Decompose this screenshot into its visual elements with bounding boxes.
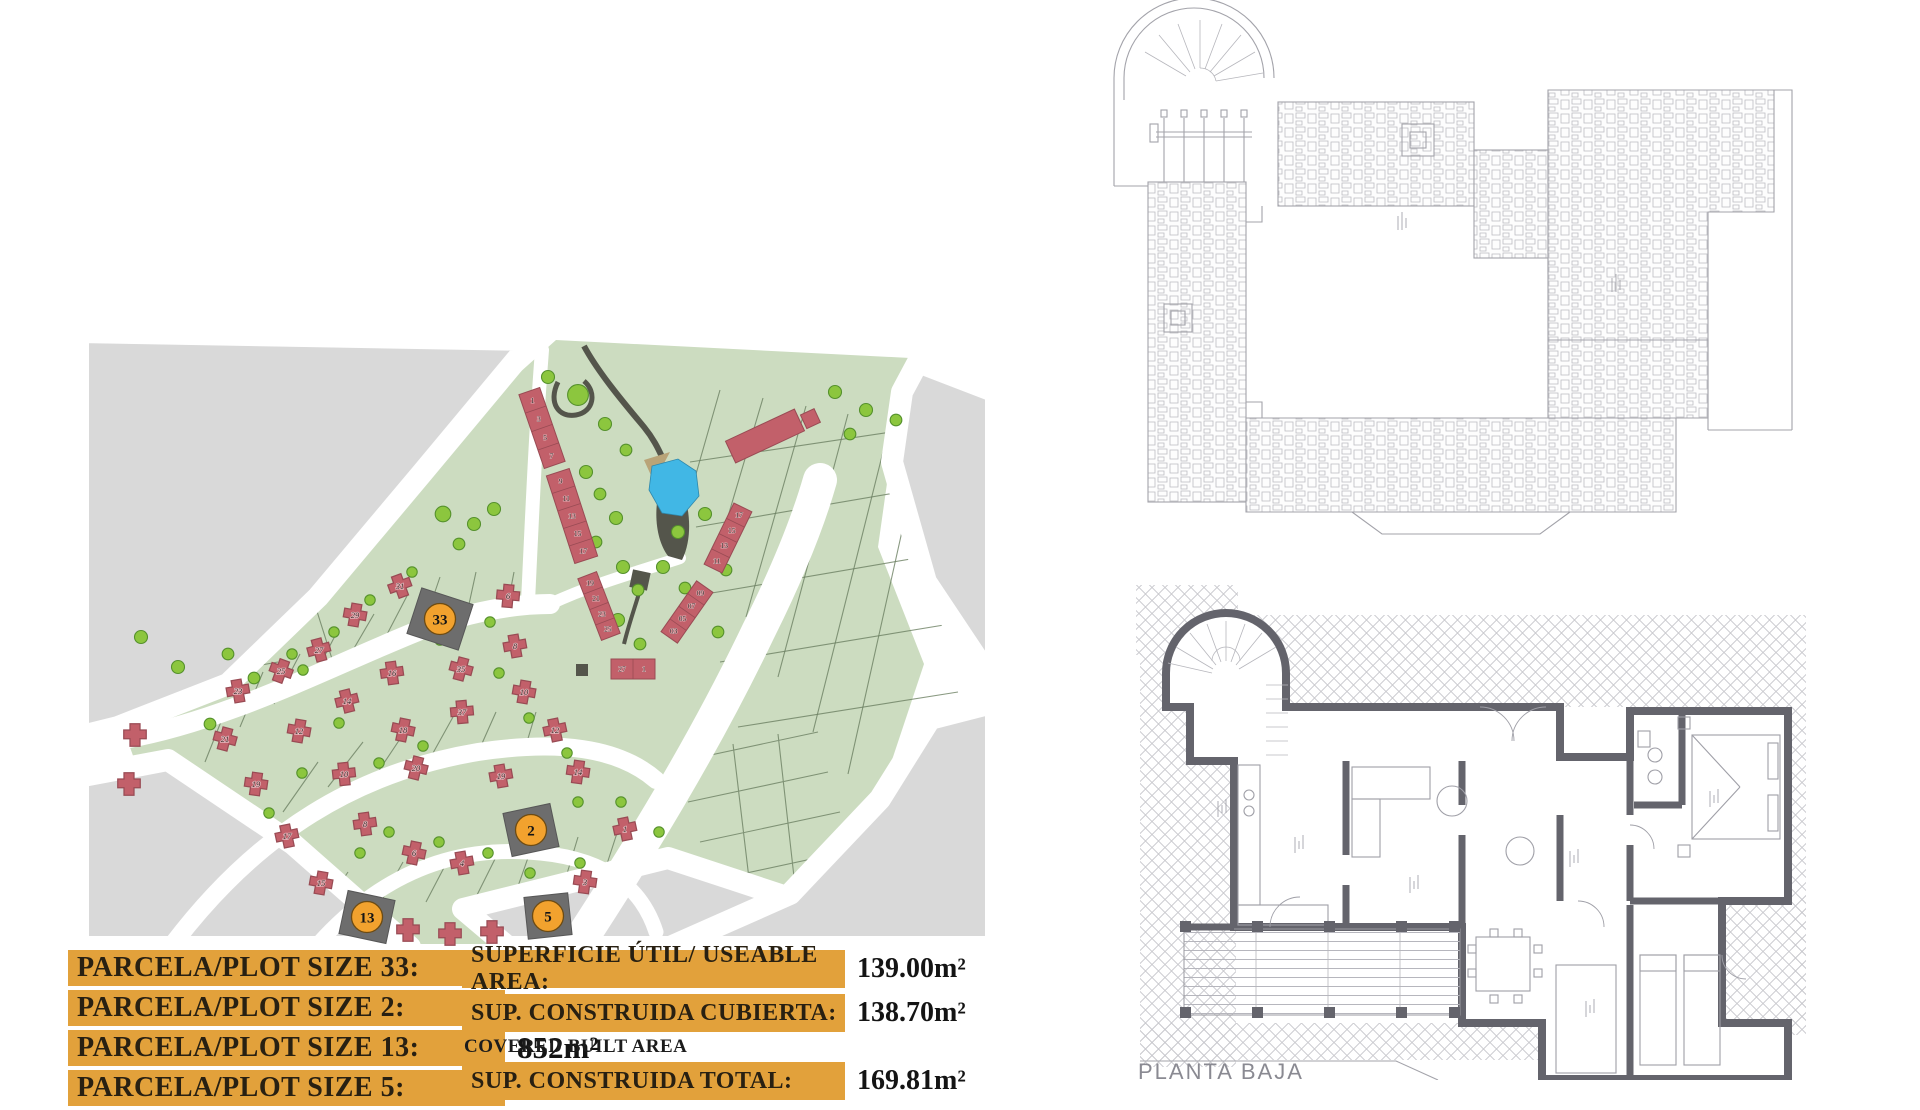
townhouse-unit-number: 19 [586,578,594,587]
area-value: 169.81m² [857,1065,966,1097]
plot-number: 37 [457,707,467,717]
townhouse-unit-number: 13 [721,541,729,550]
tree-icon [172,661,185,674]
tree-icon [616,797,626,807]
table-row: SUP. CONSTRUIDA CUBIERTA: 138.70m² [462,994,966,1032]
plot-number: 21 [221,734,230,744]
tree-icon [632,584,644,596]
floor-plan-title: PLANTA BAJA [1138,1059,1304,1080]
built-area-table: SUPERFICIE ÚTIL/ USEABLE AREA: 139.00m² … [462,950,966,1106]
townhouse-unit-number: 1 [642,665,646,674]
townhouse-unit-number: 13 [568,512,576,521]
plot-number: 15 [317,878,326,888]
roof-tiled-areas [1148,90,1774,512]
tree-icon [672,526,685,539]
townhouse-unit-number: 23 [598,609,606,618]
plot-size-label: PARCELA/PLOT SIZE 33: [68,950,505,986]
brochure-page: { "tables": { "plot_sizes": [ {"label": … [0,0,1920,1080]
plot-number: 31 [395,581,405,591]
area-value: 138.70m² [857,997,966,1029]
tree-icon [355,848,365,858]
plot-number: 23 [234,686,243,696]
roof-spiral-stair [1145,20,1263,81]
tree-icon [573,797,583,807]
townhouse-unit-number: 7 [550,451,554,460]
tree-icon [435,506,451,522]
townhouse-unit-number: 03 [670,627,678,636]
tree-icon [468,518,481,531]
ground-floor-plan: PLANTA BAJA [1100,555,1810,1080]
tree-icon [575,858,585,868]
tree-icon [407,567,417,577]
tree-icon [634,638,646,650]
area-label: SUP. CONSTRUIDA TOTAL: [462,1062,845,1100]
tree-icon [594,488,606,500]
townhouse-unit-number: 21 [592,594,600,603]
townhouse-unit-number: 09 [697,589,705,598]
tree-icon [222,648,234,660]
tree-icon [525,868,535,878]
townhouse-unit-number: 3 [537,414,541,423]
tree-icon [657,561,670,574]
tree-icon [453,538,465,550]
highlighted-plot-number: 33 [433,612,448,628]
plot-number: 14 [574,767,583,777]
tree-icon [264,808,274,818]
townhouse-unit-number: 07 [688,601,696,610]
townhouse-unit-number: 11 [563,494,570,503]
townhouse-unit-number: 5 [543,433,547,442]
townhouse-unit-number: 11 [713,557,720,566]
tree-icon [494,668,504,678]
townhouse-unit-number: 9 [559,477,563,486]
site-plan-map: 332135 212325272931683537101214161814121… [78,332,998,947]
tree-icon [699,508,712,521]
tree-icon [135,631,148,644]
townhouse-unit-number: 27 [618,665,626,674]
plot-number: 20 [412,763,421,773]
tree-icon [298,665,308,675]
roof-entry-tower [1114,0,1274,186]
townhouse-unit-number: 1 [531,396,535,405]
tree-icon [890,414,902,426]
plot-number: 12 [295,726,304,736]
tree-icon [620,444,632,456]
area-label: SUPERFICIE ÚTIL/ USEABLE AREA: [462,950,845,988]
tree-icon [860,404,873,417]
tree-icon [844,428,856,440]
plot-number: 10 [340,769,349,779]
tree-icon [434,837,444,847]
plot-number: 18 [399,725,408,735]
tree-icon [374,758,384,768]
plot-number: 3 [582,877,587,887]
tree-icon [334,718,344,728]
plot-size-label: PARCELA/PLOT SIZE 13: [68,1030,505,1066]
roof-pergola [1150,110,1252,182]
plot-number: 29 [351,610,360,620]
townhouse-unit-number: 17 [735,511,743,520]
highlighted-plot-number: 13 [360,910,375,926]
plot-size-label: PARCELA/PLOT SIZE 5: [68,1070,505,1106]
tree-icon [365,595,375,605]
plot-number: 12 [551,725,560,735]
tree-icon [829,386,842,399]
tree-icon [568,385,589,406]
tree-icon [599,418,612,431]
tree-icon [524,713,534,723]
highlighted-plot-number: 5 [544,909,552,925]
townhouse-unit-number: 05 [679,614,687,623]
plot-number: 16 [388,668,397,678]
tree-icon [418,741,428,751]
tree-icon [384,827,394,837]
tree-icon [580,466,593,479]
table-row: SUPERFICIE ÚTIL/ USEABLE AREA: 139.00m² [462,950,966,988]
townhouse-unit-number: 15 [574,529,582,538]
tree-icon [610,512,623,525]
townhouse-unit-number: 17 [580,547,588,556]
highlighted-plot-number: 2 [527,823,535,839]
area-sublabel: COVERED BUILT AREA [464,1036,966,1058]
plot-number: 27 [315,645,324,655]
plot-number: 19 [497,771,506,781]
townhouse-unit-number: 15 [728,526,736,535]
plot-number: 19 [252,779,261,789]
tree-icon [617,561,630,574]
plot-number: 17 [283,831,292,841]
tree-icon [712,626,724,638]
tree-icon [297,768,307,778]
tree-icon [204,718,216,730]
plot-size-label: PARCELA/PLOT SIZE 2: [68,990,505,1026]
plot-number: 25 [277,666,286,676]
tree-icon [485,617,495,627]
tree-icon [542,371,555,384]
tree-icon [248,672,260,684]
plot-number: 1 [623,824,627,834]
tree-icon [488,503,501,516]
tree-icon [483,848,493,858]
table-row: SUP. CONSTRUIDA TOTAL: 169.81m² [462,1062,966,1100]
tree-icon [654,827,664,837]
roof-plan [1100,0,1806,540]
tree-icon [562,748,572,758]
plot-number: 14 [343,696,352,706]
plot-number: 10 [520,687,529,697]
tree-icon [329,627,339,637]
plot-number: 35 [456,664,466,674]
area-value: 139.00m² [857,953,966,985]
porch [1180,921,1460,1018]
tree-icon [287,649,297,659]
townhouse-unit-number: 25 [604,625,612,634]
area-label: SUP. CONSTRUIDA CUBIERTA: [462,994,845,1032]
park-kiosk-small [576,664,588,676]
